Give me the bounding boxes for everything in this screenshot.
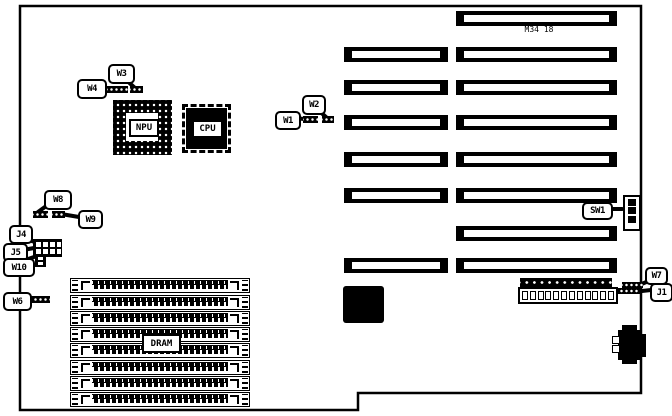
isa-slot-long-2 [456, 47, 617, 62]
keyboard-connector-pin-a [612, 336, 620, 344]
callout-w6: W6 [3, 292, 32, 311]
simm-socket-3 [70, 311, 250, 326]
keyboard-connector-body [618, 330, 642, 360]
jumper-w8 [33, 211, 48, 218]
cpu-chip-label: CPU [193, 121, 222, 137]
simm-socket-2 [70, 295, 250, 310]
isa-slot-short-1 [344, 47, 448, 62]
jumper-w6 [31, 296, 50, 303]
keyboard-connector-tab [641, 334, 646, 357]
callout-j4: J4 [9, 225, 33, 244]
jumper-w9 [52, 211, 65, 218]
isa-slot-short-2 [344, 80, 448, 95]
jumper-w1 [303, 116, 318, 123]
callout-sw1: SW1 [582, 202, 613, 220]
isa-slot-short-4 [344, 152, 448, 167]
isa-slot-long-4 [456, 115, 617, 130]
chipset-ic [343, 286, 384, 323]
npu-chip-label: NPU [129, 119, 159, 137]
isa-slot-short-5 [344, 188, 448, 203]
board-part-number: M34 18 [514, 25, 564, 37]
power-connector [518, 277, 614, 303]
jumper-w3 [130, 86, 143, 93]
power-connector-pins [520, 278, 612, 287]
dram-bank-label: DRAM [142, 334, 181, 353]
simm-socket-6 [70, 360, 250, 375]
sw1-dip-switch [623, 195, 641, 231]
w10-header-connector [35, 255, 46, 267]
isa-slot-long-1 [456, 11, 617, 26]
isa-slot-long-7 [456, 226, 617, 241]
callout-w2: W2 [302, 95, 326, 115]
power-connector-sockets [518, 287, 618, 304]
callout-w4: W4 [77, 79, 107, 99]
jumper-w2 [322, 116, 334, 123]
jumper-w4 [107, 86, 128, 93]
isa-slot-long-5 [456, 152, 617, 167]
callout-w10: W10 [3, 258, 35, 277]
callout-j1: J1 [650, 283, 672, 302]
isa-slot-short-6 [344, 258, 448, 273]
keyboard-connector-pin-b [612, 345, 620, 353]
jumper-j1 [617, 288, 640, 294]
simm-socket-8 [70, 392, 250, 407]
isa-slot-long-6 [456, 188, 617, 203]
isa-slot-long-8 [456, 258, 617, 273]
simm-socket-7 [70, 376, 250, 391]
callout-w9: W9 [78, 210, 103, 229]
callout-w1: W1 [275, 111, 301, 130]
npu-socket: NPU [113, 100, 172, 155]
simm-socket-1 [70, 278, 250, 293]
callout-w8: W8 [44, 190, 72, 210]
isa-slot-short-3 [344, 115, 448, 130]
isa-slot-long-3 [456, 80, 617, 95]
motherboard-diagram: M34 18 NPU CPU DRAM W3 W4 W2 W1 W8 W9 J4… [0, 0, 672, 416]
cpu-chip: CPU [186, 108, 227, 149]
callout-w3: W3 [108, 64, 135, 84]
